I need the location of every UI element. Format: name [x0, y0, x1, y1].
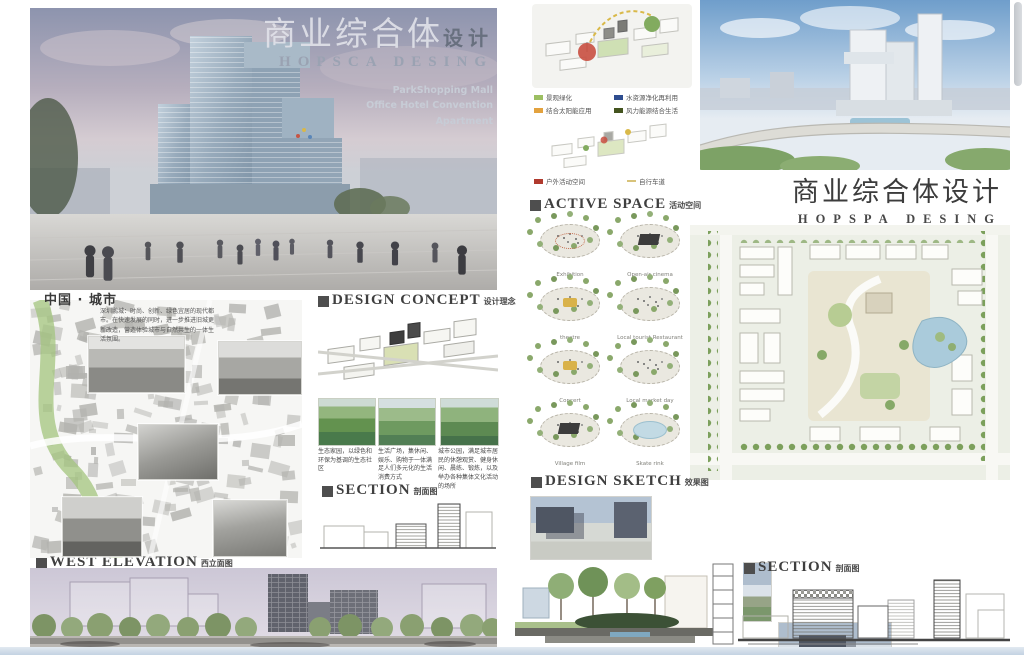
plaza-diagram: Exhibition [530, 216, 610, 278]
legend-item: 结合太阳能应用 [534, 105, 608, 115]
design-concept-axon [318, 312, 498, 392]
hero-title-en: HOPSCA DESING [255, 54, 493, 71]
legend-label: 景观绿化 [546, 92, 572, 102]
west-elevation-drawing [30, 568, 497, 648]
hero-title-cn-bold: 设计 [443, 26, 493, 50]
section-marker-icon [744, 563, 755, 574]
plaza-illustration [540, 350, 600, 384]
window-bottom-edge [0, 647, 1024, 655]
city-photo [213, 500, 287, 557]
design-sketch-heading: DESIGN SKETCH 效果图 [531, 474, 709, 489]
hero-subtitle: ParkShopping Mall Office Hotel Conventio… [255, 83, 493, 129]
section-marker-icon [530, 200, 541, 211]
legend-item: 风力能源结合生活 [614, 105, 678, 115]
plaza-illustration [620, 224, 680, 258]
active-space-subtitle: 活动空间 [669, 200, 701, 211]
legend-label: 结合太阳能应用 [546, 105, 592, 115]
design-concept-title: DESIGN CONCEPT [332, 293, 481, 308]
building-mass [614, 502, 648, 538]
legend-label: 水资源净化再利用 [626, 92, 678, 102]
plaza-accent [555, 233, 585, 249]
eco-caption: 生活广场，集休闲、娱乐、购物于一体满足人们多元化的生活消费方式 [378, 448, 434, 483]
plaza-illustration [540, 413, 600, 447]
aerial-rendering [700, 0, 1010, 170]
eco-image [440, 398, 499, 446]
sketch-thumbnail [530, 496, 652, 560]
plaza-label: Village film [555, 461, 586, 467]
plaza-illustration [620, 350, 680, 384]
city-photo [62, 497, 142, 557]
plaza-diagram: Open-air cinema [610, 216, 690, 278]
eco-image [318, 398, 376, 446]
active-space-title: ACTIVE SPACE [544, 197, 666, 212]
hero-title-block: 商业综合体设计 HOPSCA DESING ParkShopping Mall … [255, 16, 493, 129]
plaza-accent [563, 361, 577, 370]
city-photo [218, 341, 302, 395]
poster-canvas: 商业综合体设计 HOPSCA DESING ParkShopping Mall … [0, 0, 1024, 655]
plaza-accent [563, 298, 577, 307]
plaza-diagram: Skate rink [610, 405, 690, 467]
active-space-diagrams: Exhibition Open-air cinema theatre Local… [530, 216, 690, 467]
plaza-label: Exhibition [556, 272, 583, 278]
legend-label: 户外活动空间 [546, 176, 585, 186]
right-title-block: 商业综合体设计 HOPSPA DESING [760, 170, 1002, 227]
hero-subtitle-line: Apartment [255, 114, 493, 129]
legend-item: 水资源净化再利用 [614, 92, 678, 102]
plaza-label: Concert [559, 398, 581, 404]
scrollbar-thumb[interactable] [1014, 2, 1022, 86]
legend-swatch [614, 95, 623, 100]
legend-swatch [534, 179, 543, 184]
sustainability-axon-diagram [532, 4, 692, 88]
design-sketch-subtitle: 效果图 [685, 477, 709, 488]
hero-subtitle-line: ParkShopping Mall [255, 83, 493, 98]
section-heading-right: SECTION 剖面图 [744, 560, 860, 575]
eco-image [378, 398, 436, 446]
plaza-label: theatre [560, 335, 580, 341]
hero-title-cn: 商业综合体设计 [255, 16, 493, 52]
sustainability-legend: 景观绿化 水资源净化再利用 结合太阳能应用 风力能源结合生活 [534, 92, 678, 115]
city-section-paragraph: 深圳鹏城：时尚、创新、绿色宜居的现代都市。在快速发展的同时，进一步推进旧城更新改… [100, 307, 218, 344]
section-drawing-left [318, 496, 498, 558]
city-section-title: 中国 · 城市 [44, 289, 117, 308]
legend-label: 自行车道 [639, 176, 665, 186]
plaza-accent [558, 423, 580, 434]
master-plan [690, 225, 1010, 480]
section-title-right: SECTION [758, 560, 833, 575]
section-drawing-right [738, 576, 1010, 648]
hero-subtitle-line: Office Hotel Convention [255, 98, 493, 113]
hero-rendering: 商业综合体设计 HOPSCA DESING ParkShopping Mall … [30, 8, 497, 290]
active-space-heading: ACTIVE SPACE 活动空间 [530, 197, 701, 212]
section-marker-icon [318, 296, 329, 307]
section-marker-icon [531, 477, 542, 488]
plaza-label: Local market day [626, 398, 673, 404]
plaza-label: Skate rink [636, 461, 664, 467]
plaza-diagram: Local market day [610, 342, 690, 404]
plaza-diagram: Local tourist Restaurant [610, 279, 690, 341]
plaza-illustration [540, 224, 600, 258]
legend-swatch [614, 108, 623, 113]
right-title-cn: 商业综合体设计 [760, 170, 1002, 209]
legend-item: 景观绿化 [534, 92, 608, 102]
section-subtitle-right: 剖面图 [836, 563, 860, 574]
design-concept-heading: DESIGN CONCEPT 设计理念 [318, 293, 516, 308]
plaza-accent [633, 421, 667, 439]
city-photo [138, 424, 218, 480]
activity-legend: 户外活动空间 自行车道 [534, 176, 665, 186]
legend-item: 户外活动空间 [534, 176, 585, 186]
plaza-illustration [540, 287, 600, 321]
activity-axon-diagram [542, 118, 672, 174]
eco-caption: 城市公园，满足城市居民的休憩观赏、健身休闲、晨练、锻炼，以及举办各种集体文化活动… [438, 448, 498, 491]
building-mass [536, 507, 574, 533]
design-sketch-title: DESIGN SKETCH [545, 474, 682, 489]
plaza-accent [638, 234, 660, 245]
plaza-illustration [620, 287, 680, 321]
city-photo [88, 336, 185, 393]
eco-caption: 生态家园，以绿色和环保为基调的生态社区 [318, 448, 374, 474]
legend-label: 风力能源结合生活 [626, 105, 678, 115]
plaza-diagram: Concert [530, 342, 610, 404]
landscape-section-sketch [515, 560, 743, 648]
plaza-label: Open-air cinema [627, 272, 673, 278]
legend-swatch [627, 180, 636, 182]
legend-item: 自行车道 [627, 176, 665, 186]
plaza-illustration [620, 413, 680, 447]
design-concept-subtitle: 设计理念 [484, 296, 516, 307]
legend-swatch [534, 95, 543, 100]
plaza-diagram: Village film [530, 405, 610, 467]
plaza-diagram: theatre [530, 279, 610, 341]
hero-title-cn-main: 商业综合体 [263, 14, 443, 53]
legend-swatch [534, 108, 543, 113]
plaza-label: Local tourist Restaurant [617, 335, 683, 341]
